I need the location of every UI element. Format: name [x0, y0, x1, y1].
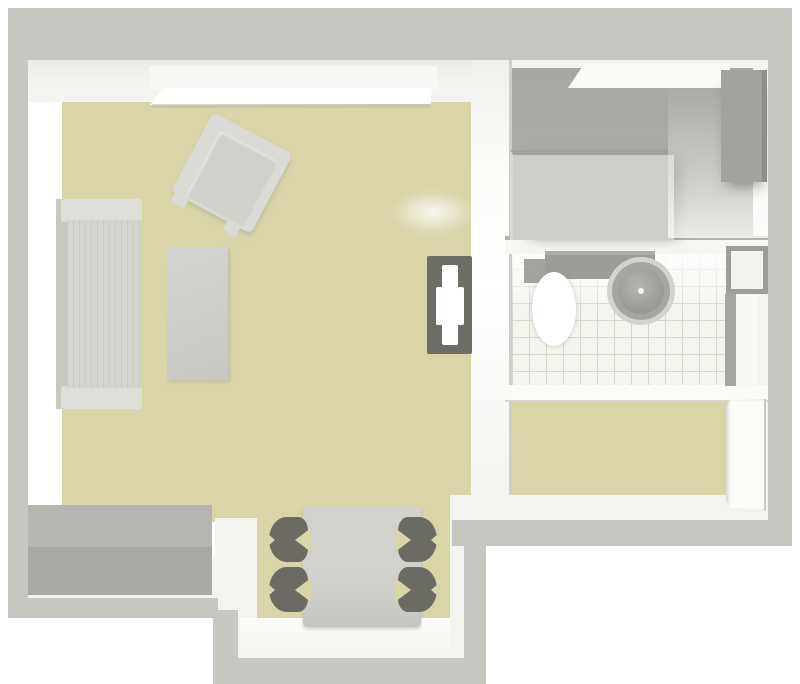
- outer-wall-bottom-right: [452, 520, 792, 546]
- dining-chair: [398, 567, 437, 612]
- sofa-armrest-bottom: [61, 386, 142, 409]
- outer-wall-left: [8, 8, 28, 618]
- sideboard: [26, 505, 212, 595]
- outer-wall-nook-bottom: [213, 658, 486, 684]
- open-door-leaf: [726, 399, 766, 511]
- bathroom-wall-cabinet: [726, 246, 768, 294]
- tv: [427, 256, 472, 354]
- sideboard-front-face: [26, 547, 212, 595]
- outer-wall-top: [8, 8, 792, 60]
- chair-pair-right: [398, 517, 437, 613]
- hallway-room-floor: [512, 400, 753, 508]
- white-counter: [568, 64, 730, 88]
- right-section-bottom-wall-face: [450, 495, 768, 522]
- toilet-bowl: [532, 272, 576, 346]
- window-ledge: [150, 66, 437, 90]
- sofa: [56, 199, 145, 409]
- dining-chair: [269, 517, 308, 562]
- tall-cabinet: [721, 70, 767, 182]
- tv-stand-base: [436, 287, 464, 325]
- washbasin-drain: [638, 288, 644, 294]
- outer-wall-bottom-left: [8, 598, 218, 618]
- dining-chair: [269, 567, 308, 612]
- sideboard-top-face: [26, 505, 212, 547]
- bathtub-edge: [725, 294, 736, 386]
- round-washbasin: [607, 257, 675, 325]
- window-light-strip-shadow: [152, 104, 431, 108]
- center-partition-wall: [471, 58, 512, 520]
- chair-pair-left: [269, 517, 308, 613]
- sofa-seat: [67, 220, 141, 388]
- floorplan-render: [0, 0, 800, 684]
- outer-wall-right: [768, 8, 792, 546]
- bathroom-hallway-divider-wall: [505, 385, 768, 402]
- wall-light-glow: [390, 190, 475, 235]
- window-light-strip: [150, 88, 431, 105]
- outer-wall-nook-right: [464, 540, 486, 684]
- worktop-block: [510, 150, 674, 240]
- sofa-armrest-top: [61, 199, 142, 222]
- bathtub: [736, 294, 757, 386]
- dining-chair: [398, 517, 437, 562]
- coffee-table: [167, 247, 228, 380]
